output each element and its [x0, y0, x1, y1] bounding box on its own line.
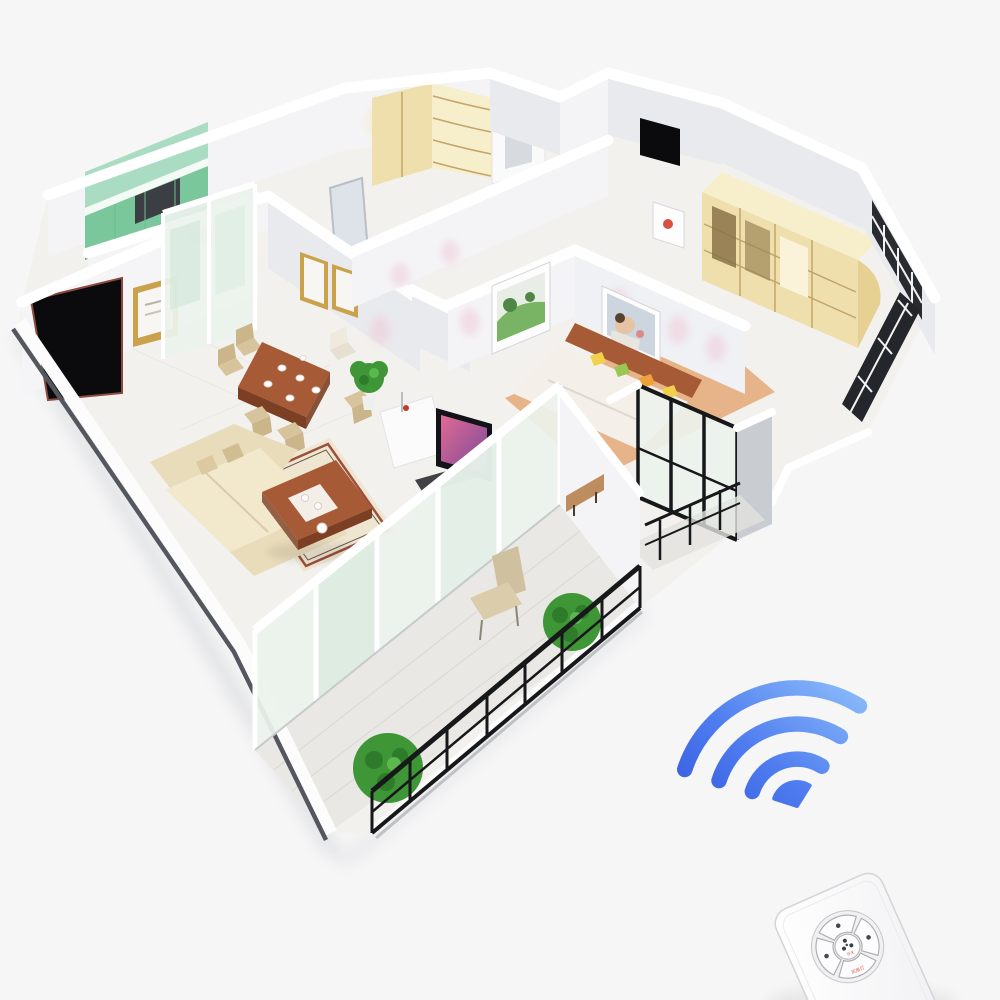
cup	[315, 503, 322, 510]
downlight-glow	[441, 240, 459, 264]
cup	[302, 495, 309, 502]
downlight-glow	[668, 316, 688, 344]
downlight-glow	[460, 308, 480, 336]
bowl	[317, 523, 327, 533]
wifi-icon	[669, 663, 884, 838]
wifi-base-wedge	[771, 777, 815, 812]
picture-inner	[304, 257, 324, 304]
wifi-arc-outer	[669, 663, 859, 769]
red-flowers	[403, 405, 409, 411]
product-image: 开关 风扇灯	[0, 0, 1000, 1000]
remote-body	[770, 868, 1000, 1000]
bush	[353, 733, 423, 803]
picture-red-accent	[663, 219, 673, 229]
picture-inner	[336, 269, 354, 312]
downlight-glow	[706, 334, 726, 362]
downlight-glow	[370, 316, 390, 344]
downlight-glow	[391, 263, 409, 287]
cabinet-dark-panel	[712, 206, 736, 268]
remote-control: 开关 风扇灯	[770, 868, 1000, 1000]
